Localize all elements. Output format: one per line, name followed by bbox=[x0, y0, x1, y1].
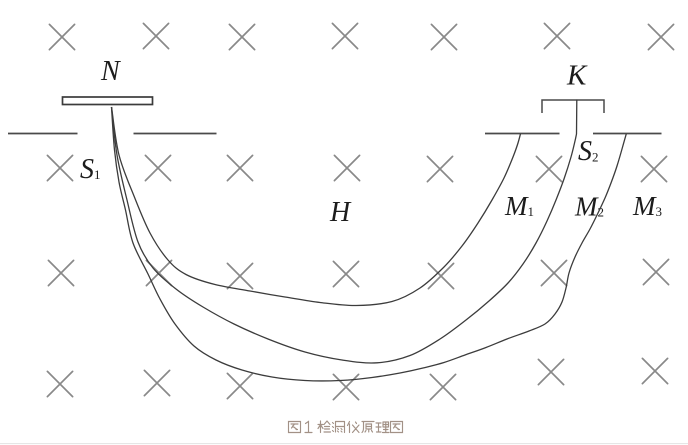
svg-text:H: H bbox=[329, 197, 352, 228]
svg-text:N: N bbox=[100, 56, 121, 87]
svg-text:K: K bbox=[566, 60, 588, 92]
